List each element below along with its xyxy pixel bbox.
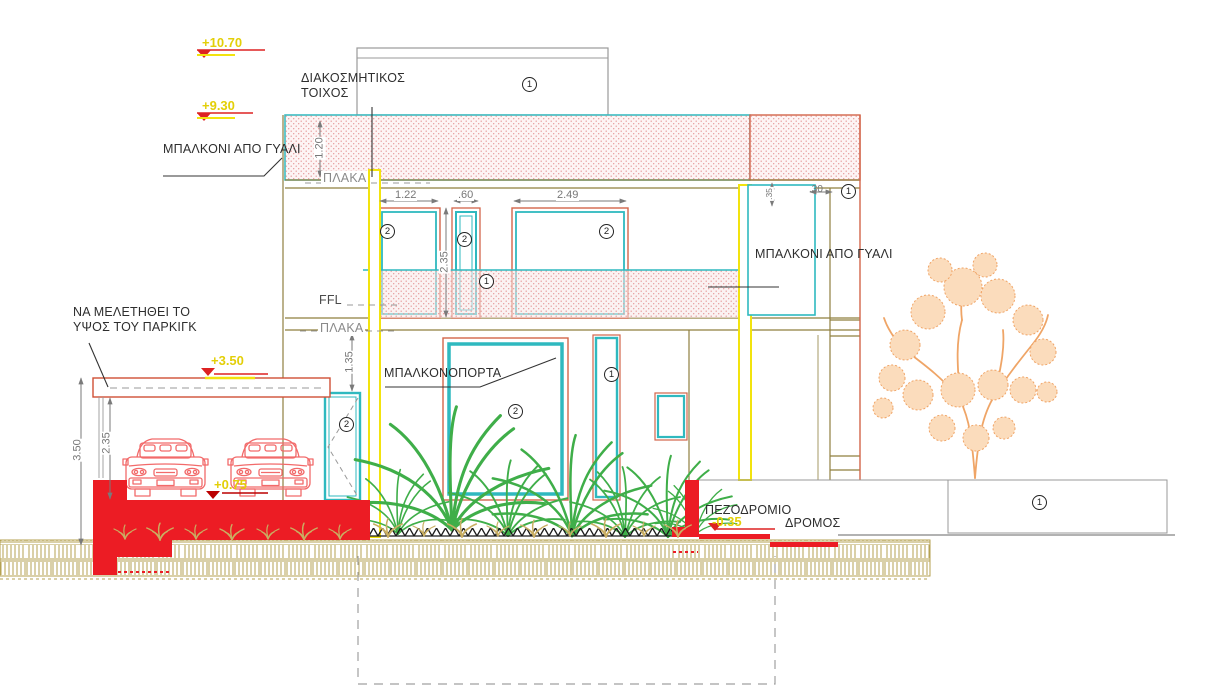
window-gf-small <box>655 393 687 440</box>
elevation-drawing: ΔΙΑΚΟΣΜΗΤΙΚΟΣ ΤΟΙΧΟΣ ΜΠΑΛΚΟΝΙ ΑΠΟ ΓΥΑΛΙ … <box>0 0 1227 697</box>
label-balcony-glass-left: ΜΠΑΛΚΟΝΙ ΑΠΟ ΓΥΑΛΙ <box>163 142 301 157</box>
dimension-label: 2.35 <box>439 250 451 273</box>
keynote-1: 1 <box>522 77 537 92</box>
keynote-1: 1 <box>1032 495 1047 510</box>
keynote-1: 1 <box>604 367 619 382</box>
label-decorative-wall: ΔΙΑΚΟΣΜΗΤΙΚΟΣ ΤΟΙΧΟΣ <box>301 71 405 101</box>
car-left <box>123 439 208 496</box>
elevation-marker: +10.70 <box>202 35 242 50</box>
dimension-label: 1.35 <box>344 350 356 373</box>
window-gf-narrow <box>593 335 620 500</box>
label-balcony-glass-right: ΜΠΑΛΚΟΝΙ ΑΠΟ ΓΥΑΛΙ <box>755 247 893 262</box>
keynote-1: 1 <box>841 184 856 199</box>
dimension-label: 1.22 <box>394 189 417 201</box>
keynote-2: 2 <box>380 224 395 239</box>
tree <box>873 253 1057 478</box>
dimension-label: 3.50 <box>72 438 84 461</box>
label-parking-note: ΝΑ ΜΕΛΕΤΗΘΕΙ ΤΟ ΥΨΟΣ ΤΟΥ ΠΑΡΚΙΓΚ <box>73 305 197 335</box>
dimension-label: .30 <box>808 184 824 195</box>
dimension-label: .35 <box>764 187 774 201</box>
label-ffl: FFL <box>317 293 344 308</box>
label-balcony-door: ΜΠΑΛΚΟΝΟΠΟΡΤΑ <box>384 366 501 381</box>
keynote-1: 1 <box>479 274 494 289</box>
elevation-marker: +3.50 <box>211 353 244 368</box>
keynote-2: 2 <box>339 417 354 432</box>
keynote-2: 2 <box>508 404 523 419</box>
window-carport <box>325 393 360 500</box>
dimension-label: 1.20 <box>314 136 326 159</box>
elevation-marker: +0.75 <box>214 477 247 492</box>
elevation-marker: +9.30 <box>202 98 235 113</box>
keynote-2: 2 <box>457 232 472 247</box>
dimension-label: .60 <box>457 189 474 201</box>
label-slab-lower: ΠΛΑΚΑ <box>318 321 365 336</box>
keynote-2: 2 <box>599 224 614 239</box>
railing-glass-band <box>363 270 745 318</box>
elevation-marker: -0.35 <box>712 514 742 529</box>
dimension-label: 2.49 <box>556 189 579 201</box>
drawing-linework <box>0 0 1227 697</box>
dimension-label: 2.35 <box>101 431 113 454</box>
label-road: ΔΡΟΜΟΣ <box>785 516 840 531</box>
label-slab-upper: ΠΛΑΚΑ <box>321 171 368 186</box>
